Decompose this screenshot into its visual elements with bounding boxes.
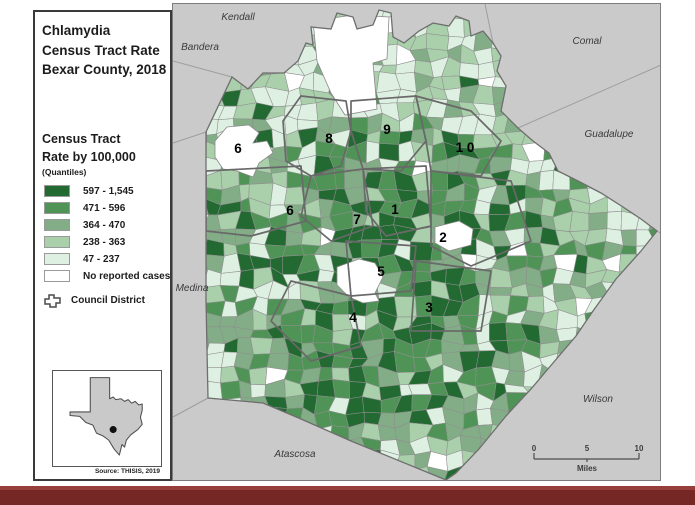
legend-class-row: 364 - 470 — [44, 217, 170, 234]
county-label-wilson: Wilson — [583, 394, 613, 405]
council-district-label: Council District — [71, 295, 145, 306]
legend-subtitle: (Quantiles) — [42, 167, 170, 177]
legend-swatch — [44, 270, 70, 282]
footer-bar — [0, 490, 695, 505]
district-label: 6 — [234, 141, 242, 156]
legend-class-row: 597 - 1,545 — [44, 183, 170, 200]
legend-class-label: 597 - 1,545 — [83, 186, 134, 197]
map-title-line2: Census Tract Rate — [42, 41, 170, 61]
map-title-line3: Bexar County, 2018 — [42, 60, 170, 80]
scale-tick-0: 0 — [532, 444, 537, 453]
legend-section-line2: Rate by 100,000 — [42, 148, 170, 166]
scale-tick-10: 10 — [635, 444, 644, 453]
district-label: 1 — [391, 202, 399, 217]
legend-class-label: 471 - 596 — [83, 203, 125, 214]
county-label-comal: Comal — [573, 36, 603, 47]
legend-section-title: Census Tract Rate by 100,000 — [42, 130, 170, 166]
district-label: 6 — [286, 203, 294, 218]
district-label: 8 — [325, 131, 333, 146]
source-note: Source: THISIS, 2019 — [95, 468, 160, 475]
county-label-bandera: Bandera — [181, 42, 219, 53]
legend-class-label: 238 - 363 — [83, 237, 125, 248]
legend-class-label: No reported cases — [83, 271, 170, 282]
legend-council-district-row: Council District — [42, 293, 170, 309]
legend-class-label: 47 - 237 — [83, 254, 120, 265]
district-label: 7 — [353, 212, 361, 227]
legend-swatch — [44, 185, 70, 197]
county-label-guadalupe: Guadalupe — [585, 129, 634, 140]
district-label: 5 — [377, 264, 385, 279]
legend-panel: Chlamydia Census Tract Rate Bexar County… — [33, 10, 172, 481]
county-label-atascosa: Atascosa — [273, 449, 316, 460]
bexar-county-map: KendallBanderaComalGuadalupeMedinaAtasco… — [173, 4, 661, 481]
legend-section-line1: Census Tract — [42, 130, 170, 148]
texas-shape-icon — [61, 375, 153, 463]
legend-class-row: No reported cases — [44, 268, 170, 285]
district-label: 4 — [349, 310, 357, 325]
legend-class-label: 364 - 470 — [83, 220, 125, 231]
bexar-county-dot — [110, 426, 117, 433]
map-title: Chlamydia Census Tract Rate Bexar County… — [42, 21, 170, 80]
district-label: 2 — [439, 230, 447, 245]
county-label-medina: Medina — [176, 283, 209, 294]
legend-classes: 597 - 1,545471 - 596364 - 470238 - 36347… — [44, 183, 170, 285]
legend-swatch — [44, 219, 70, 231]
county-label-kendall: Kendall — [221, 12, 255, 23]
scale-tick-5: 5 — [585, 444, 590, 453]
legend-swatch — [44, 253, 70, 265]
legend-swatch — [44, 236, 70, 248]
scale-unit-label: Miles — [577, 464, 598, 473]
legend-class-row: 47 - 237 — [44, 251, 170, 268]
legend-class-row: 238 - 363 — [44, 234, 170, 251]
district-label: 9 — [383, 122, 391, 137]
legend-class-row: 471 - 596 — [44, 200, 170, 217]
district-label: 3 — [425, 300, 433, 315]
council-district-icon — [42, 293, 62, 309]
district-label: 1 0 — [456, 140, 475, 155]
legend-swatch — [44, 202, 70, 214]
map-title-line1: Chlamydia — [42, 21, 170, 41]
map-frame: KendallBanderaComalGuadalupeMedinaAtasco… — [172, 3, 661, 481]
texas-inset — [52, 370, 162, 467]
